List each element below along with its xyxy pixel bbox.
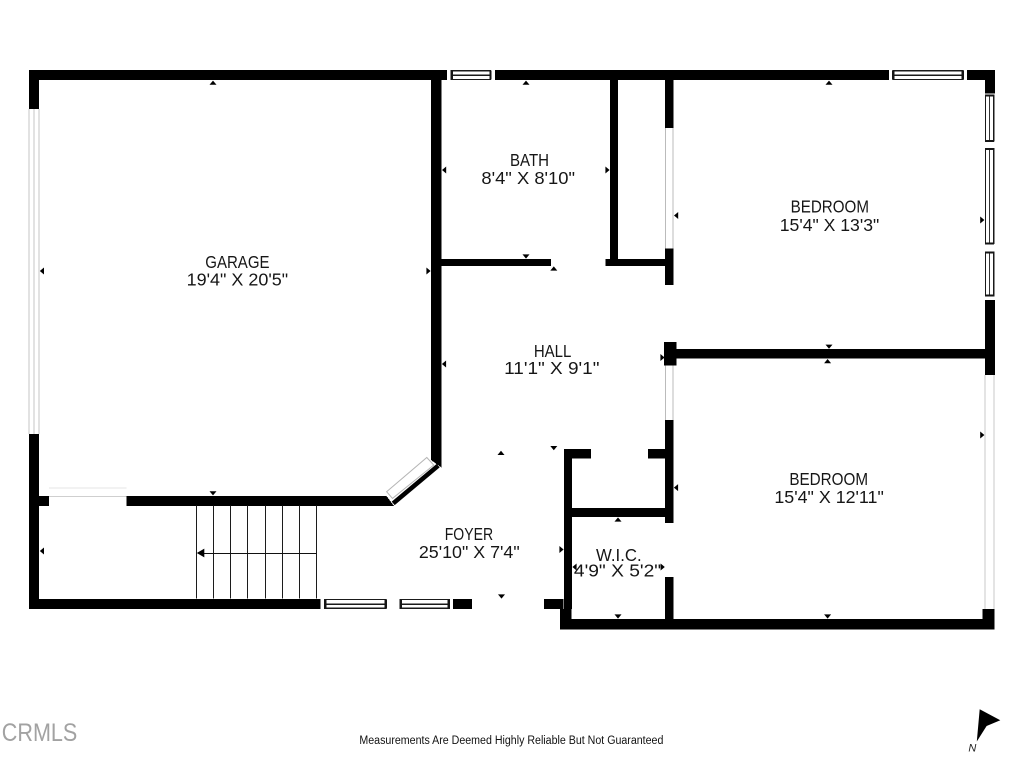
svg-text:8'4" X 8'10": 8'4" X 8'10"	[481, 168, 575, 188]
svg-text:25'10" X 7'4": 25'10" X 7'4"	[419, 542, 520, 562]
svg-text:15'4" X 13'3": 15'4" X 13'3"	[780, 215, 880, 235]
svg-text:19'4" X 20'5": 19'4" X 20'5"	[187, 269, 289, 289]
svg-text:11'1" X 9'1": 11'1" X 9'1"	[504, 358, 599, 378]
svg-text:4'9" X 5'2": 4'9" X 5'2"	[574, 561, 661, 581]
svg-text:BEDROOM: BEDROOM	[789, 469, 868, 489]
svg-text:BEDROOM: BEDROOM	[791, 197, 869, 217]
svg-text:15'4" X 12'11": 15'4" X 12'11"	[774, 487, 883, 507]
svg-text:Measurements Are Deemed Highly: Measurements Are Deemed Highly Reliable …	[359, 735, 663, 747]
svg-text:CRMLS: CRMLS	[2, 720, 78, 747]
svg-text:BATH: BATH	[510, 150, 549, 170]
svg-text:N: N	[968, 743, 976, 755]
